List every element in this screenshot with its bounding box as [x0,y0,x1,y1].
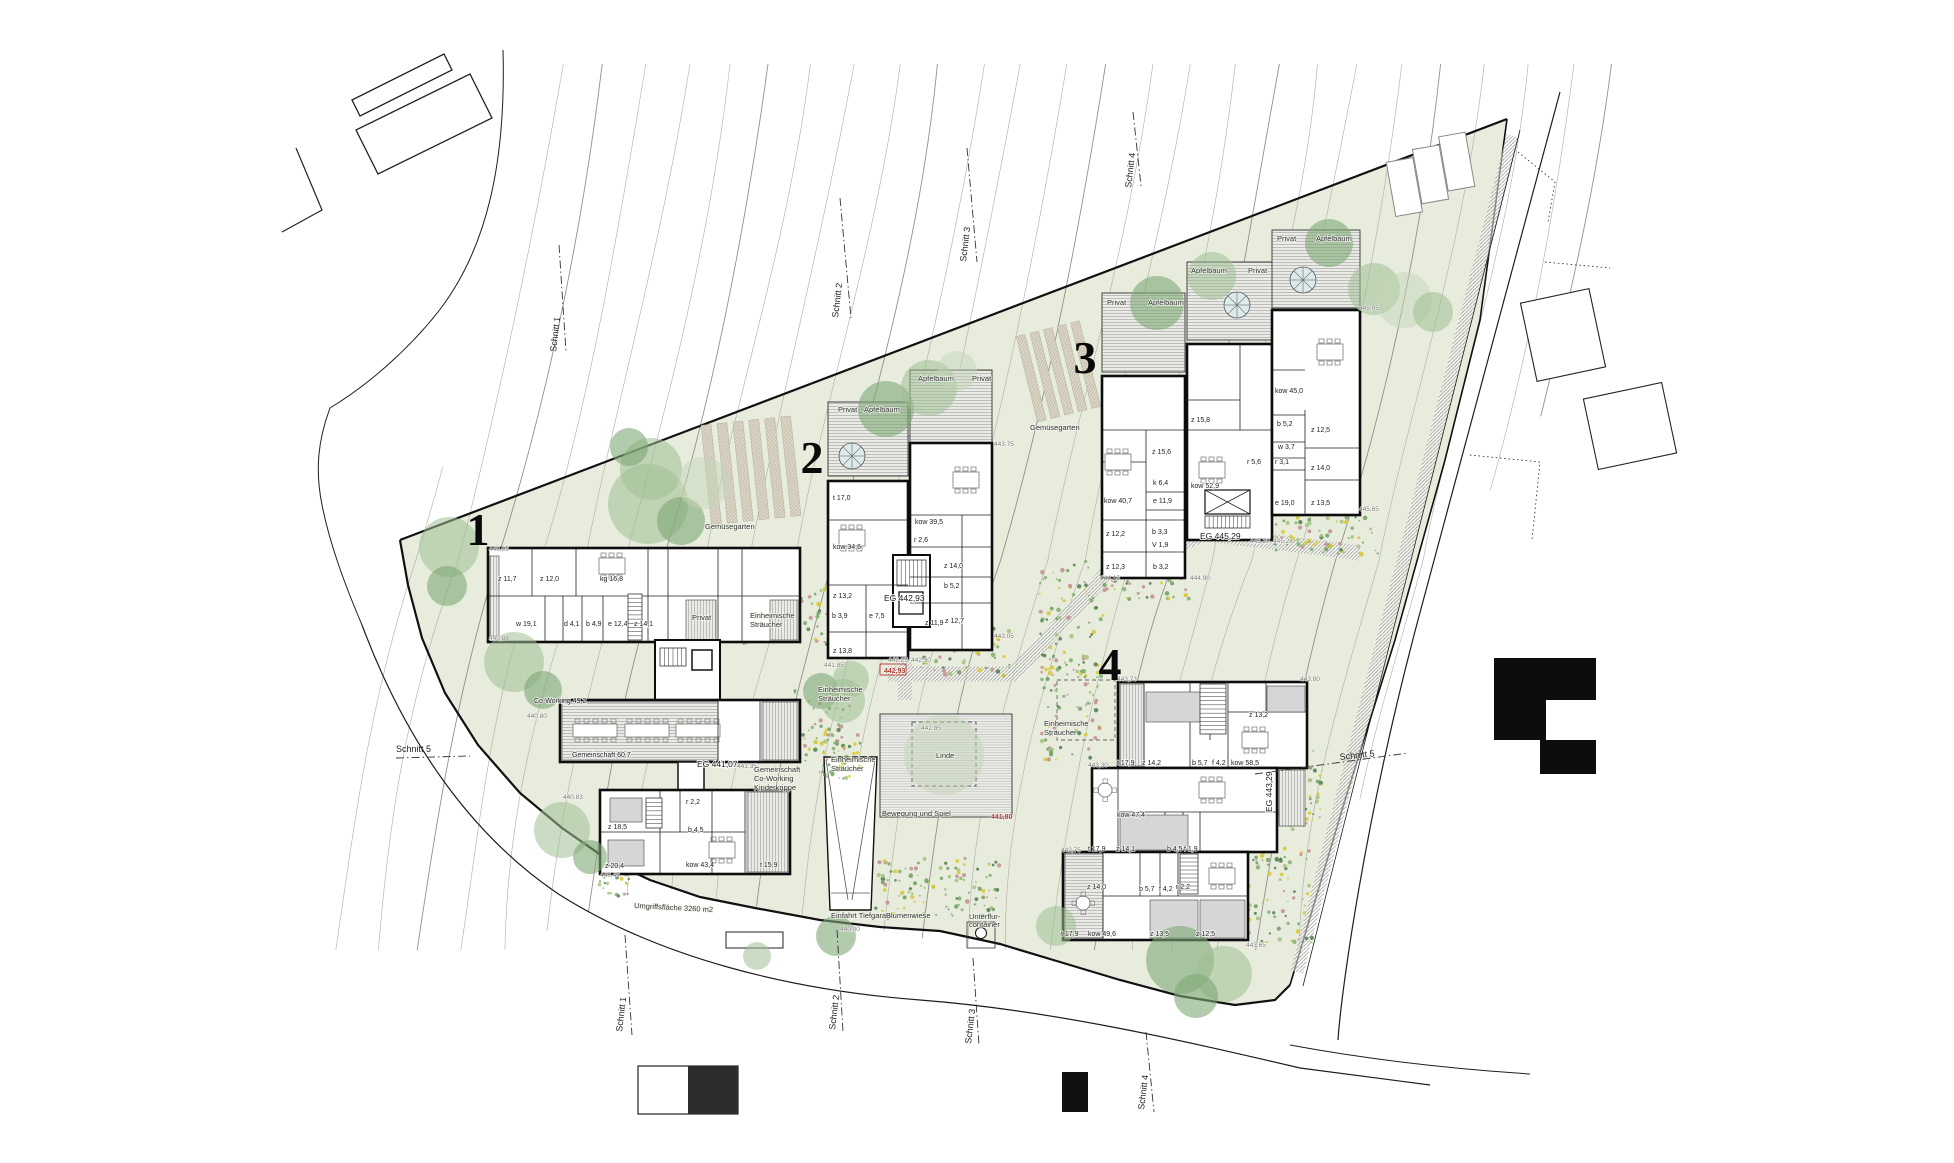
table-top [709,842,735,858]
planting-dot [1310,548,1314,552]
planting-dot [1184,594,1187,597]
planting-dot [883,861,886,864]
planting-dot [820,632,823,635]
table-top [573,724,617,737]
planting-dot [1305,523,1309,527]
planting-dot [805,760,807,762]
planting-dot [909,873,914,878]
planting-dot [819,772,821,774]
planting-dot [1255,861,1258,864]
existing-building-notch [1546,700,1596,740]
site-label: e 7,5 [869,613,885,620]
planting-dot [898,895,900,897]
planting-dot [938,655,941,658]
planting-dot [940,877,943,880]
planting-dot [972,885,976,889]
planting-dot [823,587,827,591]
planting-dot [1291,827,1295,831]
building-bar [1272,310,1360,515]
planting-dot [1307,849,1311,853]
planting-dot [1089,691,1092,694]
planting-dot [1254,856,1258,860]
site-label: r 3,1 [1275,459,1289,466]
site-label: Einheimische [750,611,795,620]
planting-dot [602,887,604,889]
site-label: z 14,1 [1116,846,1135,853]
site-label: b 5,7 [1139,886,1155,893]
site-label: Apfelbaum [1191,266,1227,275]
planting-dot [623,893,626,896]
table-top [599,558,625,574]
site-label: e 19,0 [1275,500,1295,507]
site-label: b 5,2 [944,583,960,590]
planting-dot [1142,585,1145,588]
planting-dot [1296,516,1300,520]
site-label: z 13,5 [1150,931,1169,938]
planting-dot [1073,564,1076,567]
building-number-2: 2 [801,432,824,483]
planting-dot [1052,572,1054,574]
planting-dot [890,870,893,873]
site-label: z 14,1 [634,621,653,628]
planting-dot [1056,608,1061,613]
planting-dot [1320,534,1323,537]
planting-dot [963,863,966,866]
planting-dot [1040,732,1043,735]
planting-dot [1313,543,1316,546]
planting-dot [1324,541,1326,543]
planting-dot [945,894,947,896]
planting-dot [1287,901,1289,903]
site-label: z 13,8 [833,648,852,655]
planting-dot [1275,523,1277,525]
planting-dot [897,908,899,910]
planting-dot [1344,520,1348,524]
planting-dot [994,888,997,891]
planting-dot [1056,578,1058,580]
planting-dot [877,873,881,877]
planting-dot [1099,617,1103,621]
planting-dot [1317,792,1320,795]
planting-dot [617,894,620,897]
planting-dot [810,602,813,605]
site-label: Privat [1107,298,1127,307]
planting-dot [1254,912,1257,915]
site-label: t 17,0 [833,495,851,502]
planting-dot [1044,668,1048,672]
stair [646,798,662,828]
planting-dot [1044,738,1047,741]
planting-dot [965,666,967,668]
site-label: 442,93 [884,668,906,675]
planting-dot [1077,676,1079,678]
planting-dot [819,718,823,722]
planting-dot [1047,706,1049,708]
site-label: kow 34,6 [833,544,861,551]
planting-dot [833,742,835,744]
planting-dot [1307,884,1311,888]
site-label: z 13,5 [1311,500,1330,507]
planting-dot [801,733,805,737]
planting-dot [598,883,602,887]
planting-dot [1088,756,1092,760]
planting-dot [1311,819,1313,821]
dining-table [953,467,979,493]
planting-dot [1041,666,1044,669]
site-label: Apfelbaum [864,405,900,414]
planting-dot [842,777,844,779]
planting-dot [1094,699,1098,703]
planting-dot [1328,544,1333,549]
planting-dot [981,889,985,893]
planting-dot [951,913,953,915]
tree [743,942,771,970]
dining-table [1105,449,1131,475]
planting-dot [1319,816,1321,818]
planting-dot [974,904,976,906]
site-label: d 4,1 [564,621,580,628]
planting-dot [1071,753,1073,755]
planting-dot [1267,864,1269,866]
planting-dot [1287,922,1290,925]
site-label: e 12,4 [608,621,628,628]
planting-dot [824,734,826,736]
planting-dot [1362,541,1364,543]
planting-dot [823,773,826,776]
planting-dot [610,892,612,894]
planting-dot [924,878,929,883]
planting-dot [1322,551,1324,553]
planting-dot [1306,892,1309,895]
planting-dot [1357,536,1360,539]
site-label: z 15,6 [1152,449,1171,456]
planting-dot [1302,898,1304,900]
planting-dot [1315,799,1319,803]
site-label: V 1,9 [1152,542,1168,549]
site-label: Schnitt 5 [396,744,431,754]
planting-dot [965,899,970,904]
site-label: b 5,7 [1192,760,1208,767]
planting-dot [1078,707,1082,711]
planting-dot [898,870,902,874]
planting-dot [992,864,995,867]
site-label: 443,05 [994,633,1014,640]
planting-dot [1039,593,1041,595]
site-label: EG 441,07 [697,759,738,769]
planting-dot [885,885,887,887]
planting-dot [913,881,917,885]
site-label: z 12,5 [1311,427,1330,434]
planting-dot [1316,780,1320,784]
building-number-4: 4 [1099,639,1122,690]
planting-dot [1046,618,1049,621]
table-top [1105,454,1131,470]
planting-dot [1297,922,1300,925]
planting-dot [1187,597,1191,601]
site-label: EG 443,29 [1264,771,1274,812]
planting-dot [1283,519,1286,522]
elevator-shaft [692,650,712,670]
planting-dot [881,874,885,878]
planting-dot [1084,733,1088,737]
site-label: 442,75 [1061,847,1081,854]
planting-dot [1298,520,1302,524]
site-label: z 14,2 [1142,760,1161,767]
planting-dot [1288,860,1292,864]
planting-dot [1128,582,1131,585]
planting-dot [808,730,810,732]
planting-dot [1066,673,1069,676]
planting-dot [1102,614,1105,617]
planting-dot [628,878,630,880]
planting-dot [1296,538,1299,541]
site-label: z 18,5 [608,824,627,831]
planting-dot [1058,587,1060,589]
planting-dot [1066,569,1069,572]
planting-dot [1328,529,1332,533]
planting-dot [963,879,965,881]
planting-dot [975,881,977,883]
planting-dot [1321,784,1323,786]
planting-dot [931,885,935,889]
planting-dot [1076,706,1078,708]
planting-dot [1308,539,1311,542]
planting-dot [988,864,990,866]
site-label: 440,00 [840,926,860,933]
site-label: z 12,3 [1106,564,1125,571]
tree [677,457,729,509]
tree [937,351,977,391]
planting-dot [1041,618,1045,622]
planting-dot [1059,637,1062,640]
site-label: z 12,2 [1106,531,1125,538]
planting-dot [1324,542,1328,546]
planting-dot [920,666,922,668]
planting-dot [1040,671,1043,674]
planting-dot [1085,704,1087,706]
tree [610,428,648,466]
table-top [1242,732,1268,748]
stair [897,560,926,586]
planting-dot [1103,588,1107,592]
planting-dot [833,752,835,754]
tree [1305,219,1353,267]
site-label: b 4,5 [1167,846,1183,853]
site-label: Bewegung und Spiel [882,809,951,818]
roof-deck [762,702,798,760]
tree [1036,906,1076,946]
planting-dot [1149,582,1152,585]
neighbor-building-dark [688,1066,738,1114]
planting-dot [1301,546,1304,549]
site-label: kow 40,7 [1104,498,1132,505]
planting-dot [887,862,891,866]
table-top [953,472,979,488]
planting-dot [814,723,816,725]
planting-dot [1044,576,1047,579]
planting-dot [1072,593,1075,596]
planting-dot [1309,795,1312,798]
site-label: 440,88 [489,635,509,642]
planting-dot [825,729,828,732]
building-number-3: 3 [1074,332,1097,383]
planting-dot [1304,905,1306,907]
planting-dot [1056,667,1060,671]
planting-dot [920,885,922,887]
planting-dot [1184,588,1187,591]
site-label: Sträucher [1044,728,1077,737]
planting-dot [1111,584,1114,587]
planting-dot [917,875,919,877]
planting-dot [943,672,947,676]
planting-dot [1278,937,1283,942]
roof-deck [1279,770,1305,826]
site-label: Kinderkrippe [754,783,796,792]
container-circle [976,928,987,939]
site-label: z 12,5 [1196,931,1215,938]
planting-dot [859,742,862,745]
planting-dot [838,750,840,752]
planting-dot [848,775,851,778]
planting-dot [935,914,937,916]
site-label: z 15,8 [1191,417,1210,424]
planting-dot [956,859,960,863]
planting-dot [1324,547,1328,551]
planting-dot [994,861,997,864]
site-plan-drawing: 440,95z 11,7z 12,0kg 16,8w 19,1d 4,1b 4,… [0,0,1954,1163]
planting-dot [948,672,952,676]
planting-dot [885,901,889,905]
planting-dot [1274,867,1277,870]
planting-dot [904,868,906,870]
site-label: 440,83 [563,794,583,801]
planting-dot [1088,682,1090,684]
planting-dot [1039,610,1043,614]
planting-dot [814,593,817,596]
upper-room-gray [1120,815,1188,850]
planting-dot [1055,714,1058,717]
site-label: 445,65 [1359,506,1379,513]
site-label: container [969,920,1000,929]
table-top [676,724,720,737]
planting-dot [990,668,994,672]
planting-dot [955,879,959,883]
site-label: b 4,9 [586,621,602,628]
planting-dot [984,905,986,907]
planting-dot [811,726,814,729]
site-label: Privat [972,374,992,383]
site-label: Apfelbaum [1148,298,1184,307]
site-label: 443,65 [1246,942,1266,949]
planting-dot [975,897,979,901]
planting-dot [911,892,914,895]
planting-dot [826,775,829,778]
planting-dot [822,751,825,754]
planting-dot [985,667,987,669]
planting-dot [1050,665,1054,669]
planting-dot [1089,703,1091,705]
planting-dot [1098,726,1102,730]
planting-dot [1303,911,1306,914]
planting-dot [1281,909,1285,913]
site-label: b 4,5 [688,827,704,834]
planting-dot [1252,859,1254,861]
planting-dot [948,875,951,878]
planting-dot [900,891,904,895]
planting-dot [1309,797,1312,800]
planting-dot [599,880,601,882]
planting-dot [844,776,848,780]
planting-dot [1077,584,1081,588]
planting-dot [903,907,906,910]
table-top [1317,344,1343,360]
planting-dot [945,905,948,908]
planting-dot [894,879,897,882]
planting-dot [1319,774,1322,777]
planting-dot [996,669,1000,673]
planting-dot [827,727,831,731]
planting-dot [1279,859,1283,863]
planting-dot [828,734,831,737]
planting-dot [1059,746,1062,749]
spiral-stair [839,443,865,469]
planting-dot [997,863,1001,867]
planting-dot [804,738,806,740]
planting-dot [976,868,979,871]
planting-dot [1375,550,1377,552]
site-label: Privat [1277,234,1297,243]
planting-dot [1316,542,1319,545]
planting-dot [1055,759,1057,761]
site-label: r 2,2 [1176,884,1190,891]
planting-dot [1090,633,1093,636]
planting-dot [816,737,818,739]
site-label: kow 39,5 [915,519,943,526]
planting-dot [1040,678,1044,682]
site-label: r 2,6 [914,537,928,544]
planting-dot [1003,655,1006,658]
planting-dot [606,882,609,885]
planting-dot [808,748,811,751]
site-label: 441,85 [824,662,844,669]
planting-dot [1377,552,1379,554]
planting-dot [820,741,824,745]
planting-dot [1040,739,1044,743]
site-label: Sträucher [831,764,864,773]
site-label: b 3,9 [832,613,848,620]
site-label: 444,15 [1100,575,1120,582]
planting-dot [1092,694,1094,696]
site-label: z 12,7 [945,618,964,625]
planting-dot [1048,748,1051,751]
planting-dot [1043,654,1047,658]
planting-dot [942,666,945,669]
planting-dot [909,887,912,890]
planting-dot [1285,915,1287,917]
planting-dot [832,747,836,751]
site-label: EG 442,93 [884,593,925,603]
site-label: Privat [1248,266,1268,275]
site-label: 445,28 [1273,538,1293,545]
planting-dot [814,638,817,641]
planting-dot [877,860,881,864]
planting-dot [1137,592,1140,595]
site-label: t 17,9 [1088,846,1106,853]
site-label: kow 49,6 [1088,931,1116,938]
planting-dot [1063,651,1066,654]
planting-dot [1298,525,1302,529]
planting-dot [1369,527,1372,530]
